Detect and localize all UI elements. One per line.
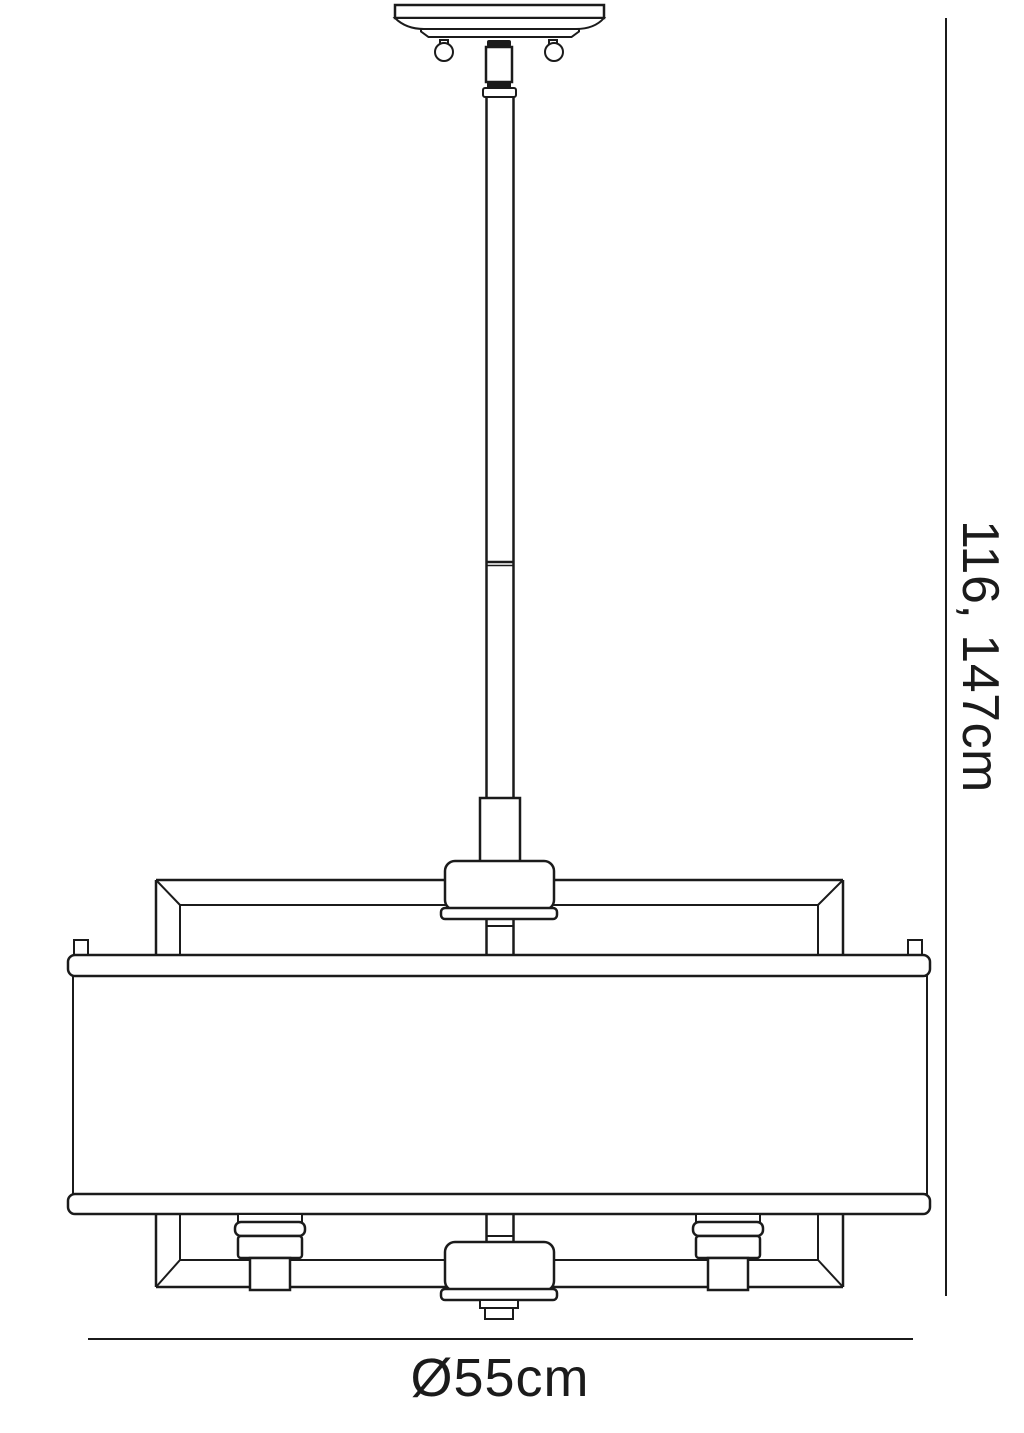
lower-finial-upper xyxy=(480,1300,518,1308)
lower-frame-left-corner-edge xyxy=(156,1260,180,1287)
upper-hub-body xyxy=(445,861,554,910)
canopy-skirt xyxy=(395,18,604,29)
lower-frame-right-corner-edge xyxy=(818,1260,843,1287)
lower-finial-lower xyxy=(485,1308,513,1319)
lamp-holder-right-socket xyxy=(708,1258,748,1290)
lamp-holder-left-ring xyxy=(235,1222,305,1236)
height-dimension: 116, 147cm xyxy=(946,18,1009,1296)
lamp-holder-left xyxy=(235,1214,305,1290)
rod-lower-tube xyxy=(480,798,520,862)
upper-center-hub xyxy=(441,861,557,956)
shade-bottom-rim xyxy=(68,1194,930,1214)
rim-clip-right xyxy=(908,940,922,956)
canopy-base-molding xyxy=(421,29,579,37)
drum-shade xyxy=(68,940,930,1214)
lamp-holder-left-body xyxy=(238,1236,302,1258)
ball-finial-right xyxy=(545,43,563,61)
diameter-dimension: Ø55cm xyxy=(88,1339,913,1408)
pendant-light-line-drawing: 116, 147cm Ø55cm xyxy=(0,0,1024,1433)
lamp-holder-left-socket xyxy=(250,1258,290,1290)
shade-top-rim xyxy=(68,955,930,976)
connector-collar xyxy=(483,88,516,97)
connector-cup xyxy=(486,47,512,82)
upper-frame-right-corner-edge xyxy=(818,880,843,905)
rim-clip-left xyxy=(74,940,88,956)
upper-hub-plate xyxy=(441,908,557,919)
lamp-holder-right xyxy=(693,1214,763,1290)
lamp-holder-right-body xyxy=(696,1236,760,1258)
technical-drawing-canvas: 116, 147cm Ø55cm xyxy=(0,0,1024,1433)
ball-finial-left xyxy=(435,43,453,61)
lamp-holder-right-ring xyxy=(693,1222,763,1236)
ceiling-canopy xyxy=(395,5,604,97)
diameter-dimension-label: Ø55cm xyxy=(410,1348,589,1408)
suspension-rod xyxy=(480,97,520,862)
upper-frame-left-corner-edge xyxy=(156,880,180,905)
shade-mesh-panel xyxy=(73,976,927,1194)
lower-hub-plate xyxy=(441,1289,557,1300)
lower-center-hub xyxy=(441,1214,557,1319)
lower-hub-body xyxy=(445,1242,554,1291)
height-dimension-label: 116, 147cm xyxy=(951,520,1009,793)
canopy-top-plate xyxy=(395,5,604,18)
